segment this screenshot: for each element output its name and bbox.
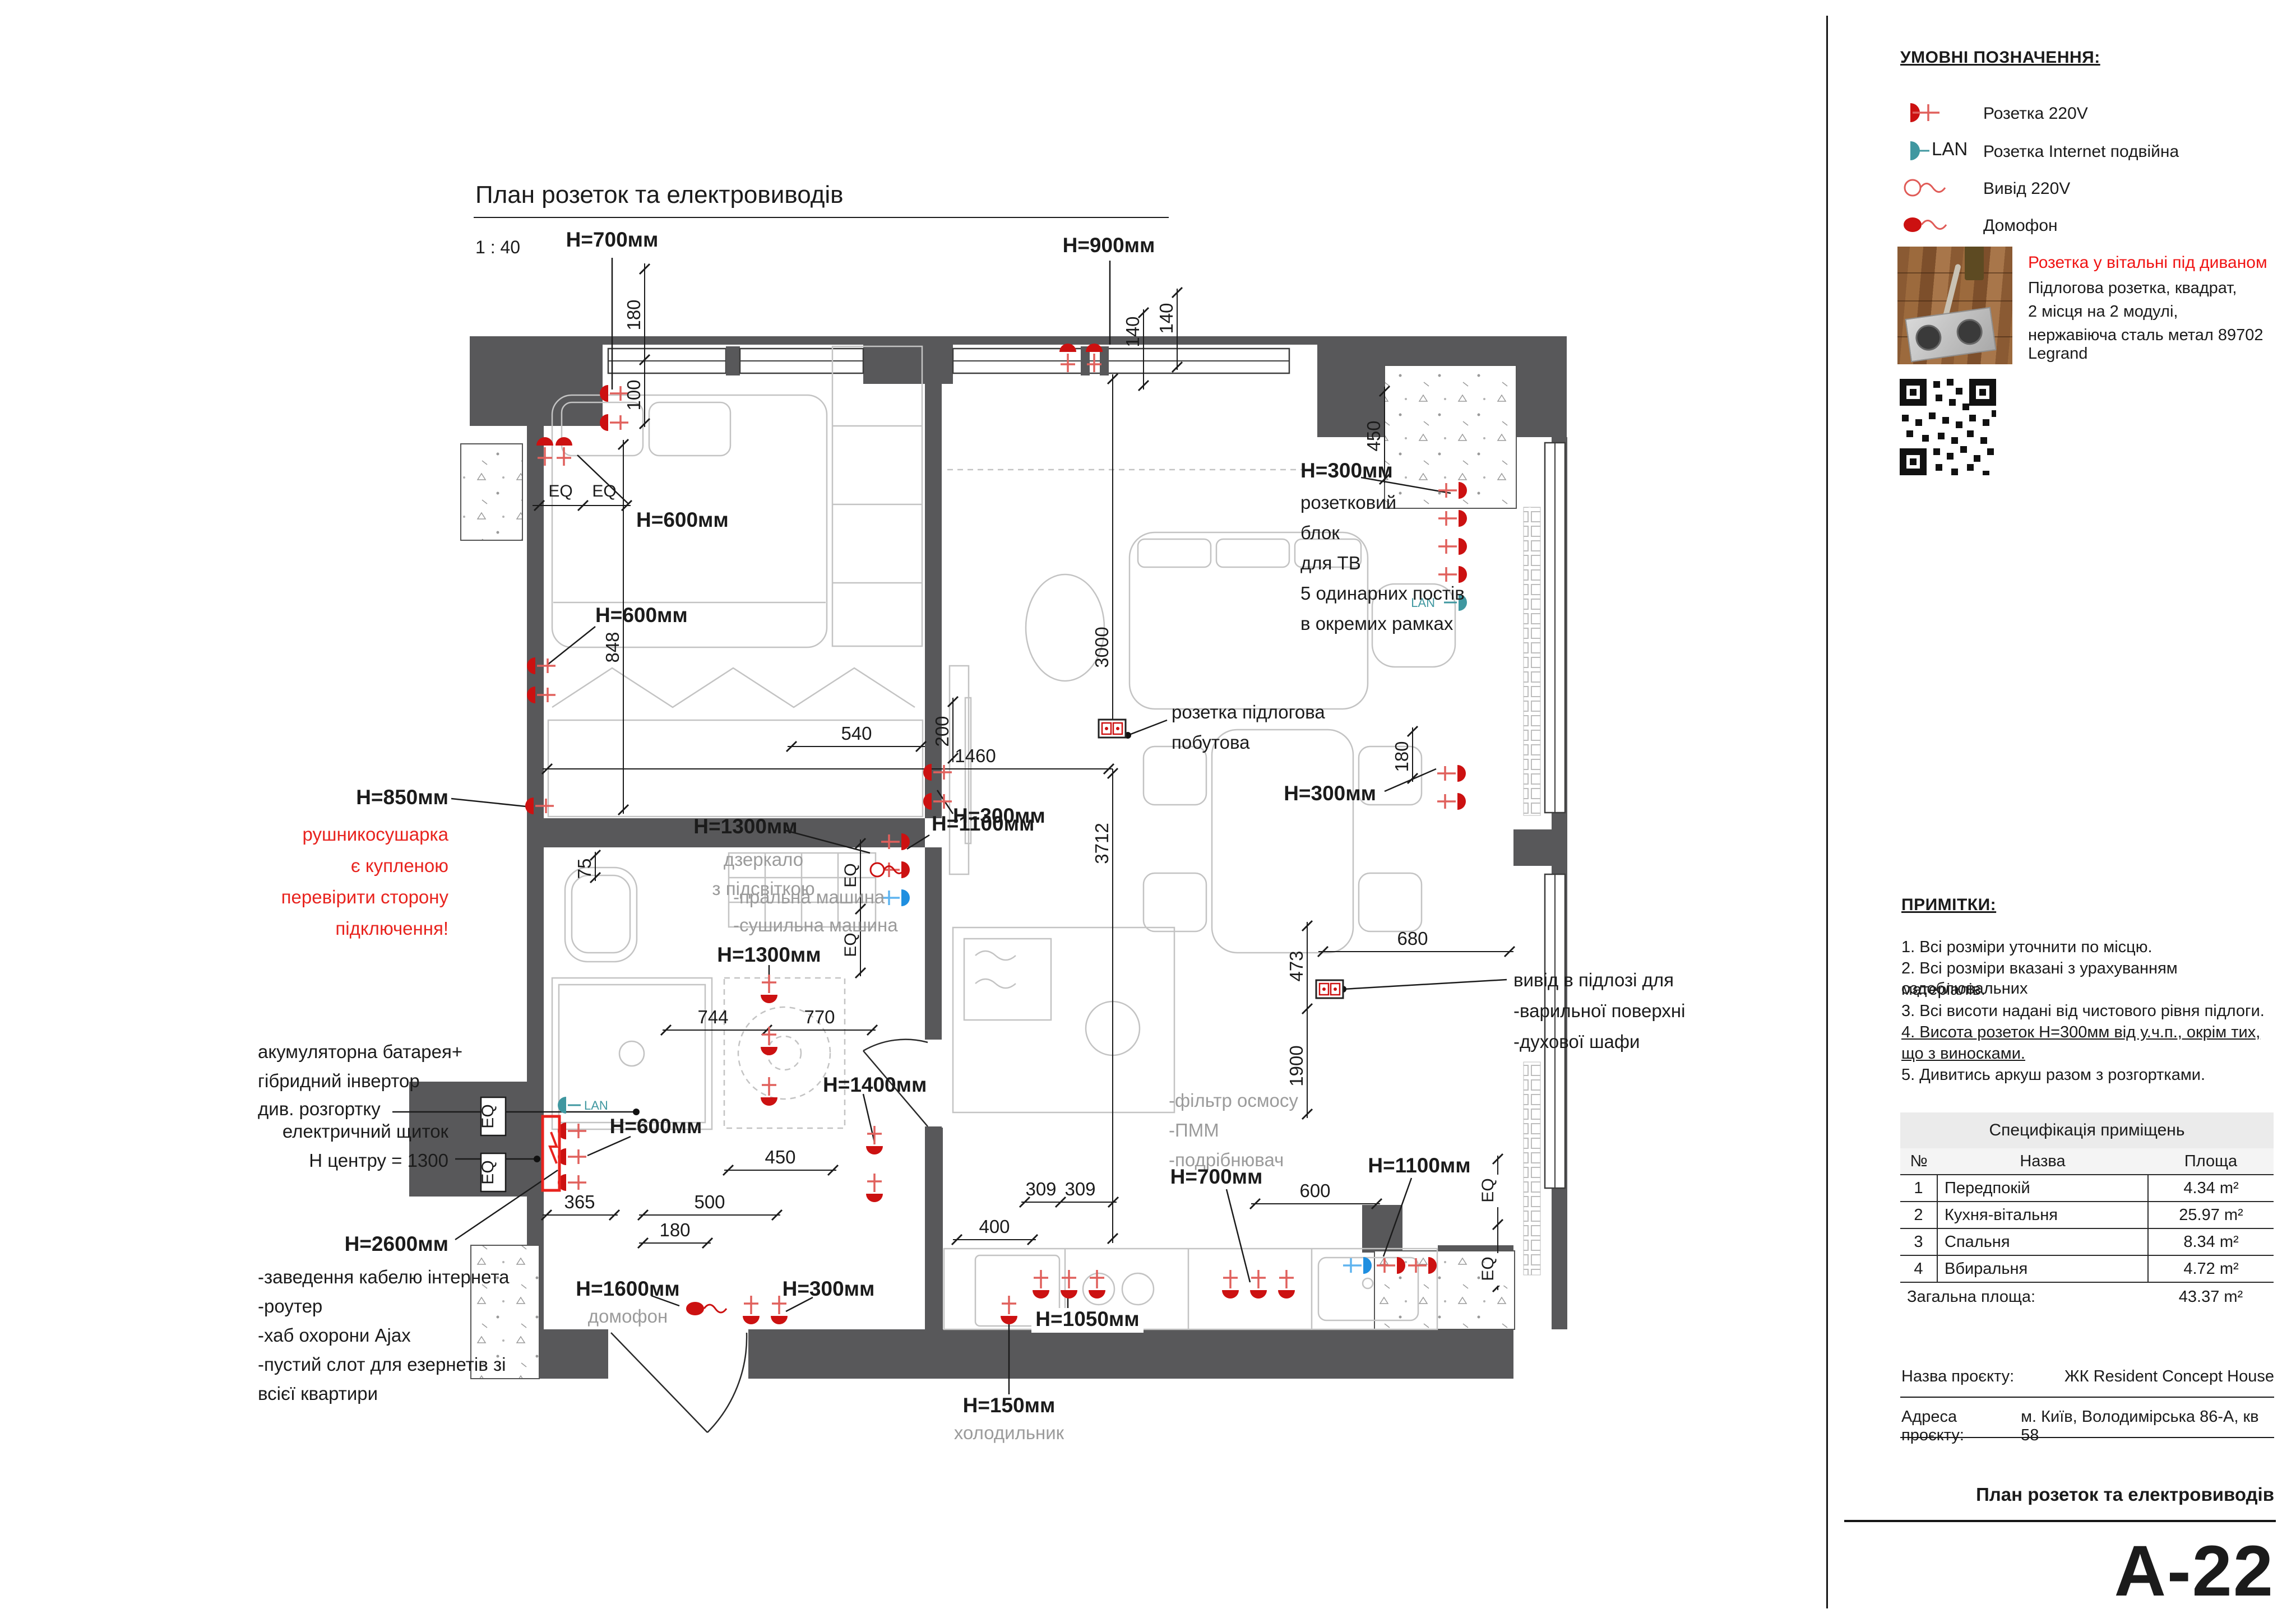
note-item: 4. Висота розеток Н=300мм від у.ч.п., ок… bbox=[1901, 1022, 2260, 1042]
svg-text:гібридний інвертор: гібридний інвертор bbox=[258, 1070, 420, 1091]
outlet-220v-icon bbox=[1033, 1270, 1049, 1299]
outlet-220v-icon bbox=[1437, 793, 1466, 810]
note-item: матеріалів. bbox=[1901, 980, 1985, 1000]
svg-text:EQ: EQ bbox=[479, 1104, 497, 1128]
outlet-220v-icon bbox=[1900, 100, 1968, 126]
svg-text:рушникосушарка: рушникосушарка bbox=[303, 824, 449, 845]
svg-text:140: 140 bbox=[1122, 316, 1143, 347]
title-block-panel: УМОВНІ ПОЗНАЧЕННЯ: Розетка 220V LAN Розе… bbox=[1827, 0, 2296, 1623]
svg-text:H=300мм: H=300мм bbox=[1284, 782, 1376, 805]
outlet-220v-icon bbox=[1222, 1270, 1239, 1299]
outlet-220v-icon bbox=[761, 1027, 777, 1055]
svg-text:400: 400 bbox=[979, 1216, 1010, 1237]
address-value: м. Київ, Володимірська 86-А, кв 58 bbox=[2021, 1408, 2274, 1445]
dining-table bbox=[1212, 730, 1353, 953]
outlet-220v-icon bbox=[1438, 538, 1467, 555]
svg-text:дзеркало: дзеркало bbox=[724, 849, 803, 870]
svg-text:3000: 3000 bbox=[1091, 627, 1112, 667]
svg-text:блок: блок bbox=[1300, 522, 1340, 543]
callout-title: Розетка у вітальні під диваном bbox=[2028, 253, 2267, 272]
svg-text:473: 473 bbox=[1286, 950, 1307, 981]
legend-item-output-220v bbox=[1900, 175, 1968, 203]
svg-text:200: 200 bbox=[932, 716, 952, 746]
chair bbox=[1359, 873, 1422, 931]
svg-text:EQ: EQ bbox=[479, 1160, 497, 1184]
svg-text:-хаб охорони Ajax: -хаб охорони Ajax bbox=[258, 1325, 411, 1346]
svg-text:EQ: EQ bbox=[841, 933, 860, 957]
svg-text:680: 680 bbox=[1397, 928, 1428, 949]
pillow bbox=[649, 402, 730, 456]
outlet-220v-icon bbox=[558, 1148, 586, 1165]
col-header-name: Назва bbox=[1937, 1148, 2148, 1175]
table-row: 2 Кухня-вітальня 25.97 m² bbox=[1900, 1202, 2274, 1228]
col-header-area: Площа bbox=[2148, 1148, 2274, 1175]
sheet-footer-title: План розеток та електровиводів bbox=[1901, 1484, 2274, 1505]
svg-text:всієї квартири: всієї квартири bbox=[258, 1383, 378, 1404]
plan-title: План розеток та електровиводів bbox=[475, 181, 844, 208]
microwave bbox=[964, 939, 1051, 1020]
svg-text:5 одинарних постів: 5 одинарних постів bbox=[1300, 583, 1465, 604]
floor-outlet-icon bbox=[1099, 720, 1126, 738]
bath-door-swing bbox=[863, 1040, 928, 1051]
total-value: 43.37 m² bbox=[2148, 1282, 2274, 1311]
svg-text:180: 180 bbox=[1391, 741, 1412, 772]
radiators bbox=[1524, 507, 1540, 1275]
svg-text:EQ: EQ bbox=[1479, 1178, 1497, 1202]
legend-item-label: Вивід 220V bbox=[1983, 179, 2070, 198]
svg-text:електричний щиток: електричний щиток bbox=[283, 1121, 449, 1142]
svg-text:H=700мм: H=700мм bbox=[566, 228, 659, 251]
svg-text:500: 500 bbox=[694, 1191, 725, 1212]
legend-item-outlet-220v bbox=[1900, 100, 1968, 128]
outlet-220v-icon bbox=[600, 414, 628, 431]
svg-text:домофон: домофон bbox=[588, 1306, 668, 1327]
callout-line: Підлогова розетка, квадрат, bbox=[2028, 279, 2237, 298]
note-item: 5. Дивитись аркуш разом з розгортками. bbox=[1901, 1065, 2205, 1085]
svg-text:-пральна машина: -пральна машина bbox=[733, 887, 885, 907]
svg-text:-сушильна машина: -сушильна машина bbox=[733, 915, 898, 935]
table-row: 3 Спальня 8.34 m² bbox=[1900, 1228, 2274, 1255]
chair bbox=[1144, 873, 1206, 931]
output-220v-icon bbox=[1900, 175, 1968, 201]
svg-text:H=1400мм: H=1400мм bbox=[823, 1073, 927, 1096]
table-row: 4 Вбиральня 4.72 m² bbox=[1900, 1255, 2274, 1282]
intercom-icon bbox=[1900, 212, 1968, 238]
svg-text:Н центру = 1300: Н центру = 1300 bbox=[309, 1150, 448, 1171]
svg-text:-фільтр осмосу: -фільтр осмосу bbox=[1169, 1090, 1298, 1111]
intercom-icon bbox=[686, 1302, 726, 1315]
svg-text:309: 309 bbox=[1064, 1179, 1095, 1199]
outlet-220v-icon bbox=[1250, 1270, 1267, 1299]
rule-thick bbox=[1844, 1520, 2276, 1522]
svg-text:H=700мм: H=700мм bbox=[1170, 1165, 1263, 1188]
svg-text:H=600мм: H=600мм bbox=[610, 1115, 702, 1138]
outlet-blue-icon bbox=[881, 889, 910, 906]
svg-text:EQ: EQ bbox=[548, 482, 572, 500]
svg-text:див. розгортку: див. розгортку bbox=[258, 1098, 381, 1119]
svg-text:H=300мм: H=300мм bbox=[783, 1277, 875, 1300]
table-row: 1 Передпокій 4.34 m² bbox=[1900, 1175, 2274, 1202]
rule bbox=[1900, 1437, 2274, 1438]
svg-text:770: 770 bbox=[804, 1007, 835, 1027]
legend-item-label: Домофон bbox=[1983, 216, 2058, 235]
svg-text:309: 309 bbox=[1025, 1179, 1056, 1199]
shower bbox=[552, 978, 712, 1129]
floor-outlet-photo bbox=[1897, 247, 2012, 364]
svg-text:450: 450 bbox=[765, 1147, 795, 1167]
svg-text:100: 100 bbox=[623, 379, 644, 410]
room-spec-table: Специфікація приміщень № Назва Площа 1 П… bbox=[1900, 1112, 2274, 1311]
legend-item-outlet-internet: LAN bbox=[1900, 138, 1984, 166]
total-label: Загальна площа: bbox=[1900, 1282, 2148, 1311]
svg-text:-пустий слот для езернетів зі: -пустий слот для езернетів зі bbox=[258, 1354, 506, 1375]
svg-text:підключення!: підключення! bbox=[335, 918, 448, 939]
svg-text:перевірити сторону: перевірити сторону bbox=[281, 887, 449, 907]
legend-item-label: Розетка 220V bbox=[1983, 104, 2088, 123]
svg-text:розетковий: розетковий bbox=[1300, 492, 1396, 513]
svg-text:LAN: LAN bbox=[1932, 138, 1968, 159]
callout-line: нержавіюча сталь метал 89702 Legrand bbox=[2028, 326, 2296, 363]
svg-text:-ПММ: -ПММ bbox=[1169, 1120, 1219, 1140]
outlet-220v-icon bbox=[1001, 1296, 1017, 1324]
svg-text:H=600мм: H=600мм bbox=[636, 508, 729, 531]
svg-text:в окремих рамках: в окремих рамках bbox=[1300, 613, 1453, 634]
svg-text:H=1300мм: H=1300мм bbox=[693, 815, 797, 838]
svg-text:H=1100мм: H=1100мм bbox=[1368, 1154, 1470, 1177]
svg-text:180: 180 bbox=[659, 1219, 690, 1240]
address-label: Адреса проєкту: bbox=[1901, 1408, 2021, 1445]
col-header-num: № bbox=[1900, 1148, 1937, 1175]
svg-text:1460: 1460 bbox=[955, 745, 996, 766]
lightning-icon bbox=[550, 1132, 557, 1163]
note-item: 1. Всі розміри уточнити по місцю. bbox=[1901, 937, 2152, 957]
outlet-220v-icon bbox=[881, 861, 910, 878]
svg-text:H=1300мм: H=1300мм bbox=[717, 943, 821, 966]
svg-text:H=150мм: H=150мм bbox=[963, 1394, 1056, 1417]
svg-text:180: 180 bbox=[623, 299, 644, 330]
svg-text:450: 450 bbox=[1363, 420, 1384, 451]
svg-text:365: 365 bbox=[564, 1191, 595, 1212]
notes-title: ПРИМІТКИ: bbox=[1901, 896, 1996, 915]
svg-text:140: 140 bbox=[1156, 303, 1177, 333]
outlet-220v-icon bbox=[1437, 765, 1466, 782]
svg-text:75: 75 bbox=[574, 859, 595, 879]
outlet-internet-icon bbox=[558, 1097, 581, 1114]
project-value: ЖК Resident Concept House bbox=[2064, 1367, 2274, 1386]
hanger-rail bbox=[552, 668, 915, 707]
svg-text:848: 848 bbox=[602, 632, 623, 662]
svg-text:H=2600мм: H=2600мм bbox=[345, 1232, 448, 1255]
outlet-220v-icon bbox=[558, 1123, 586, 1139]
svg-text:розетка підлогова: розетка підлогова bbox=[1172, 702, 1325, 722]
outlet-internet-icon: LAN bbox=[1900, 138, 1984, 164]
note-item: що з виносками. bbox=[1901, 1044, 2025, 1064]
outlet-220v-icon bbox=[761, 1077, 777, 1106]
callout-line: 2 місця на 2 модулі, bbox=[2028, 303, 2178, 321]
svg-text:744: 744 bbox=[697, 1007, 728, 1027]
svg-text:вивід в підлозі для: вивід в підлозі для bbox=[1513, 970, 1674, 990]
outlet-220v-icon bbox=[761, 975, 777, 1003]
note-item: 3. Всі висоти надані від чистового рівня… bbox=[1901, 1001, 2265, 1021]
svg-text:3712: 3712 bbox=[1091, 823, 1112, 864]
lan-label: LAN bbox=[584, 1098, 608, 1112]
svg-text:є купленою: є купленою bbox=[351, 855, 448, 876]
outlet-220v-icon bbox=[866, 1126, 883, 1154]
svg-text:-роутер: -роутер bbox=[258, 1296, 322, 1316]
svg-text:EQ: EQ bbox=[592, 482, 616, 500]
svg-text:540: 540 bbox=[841, 723, 872, 744]
svg-text:H=1050мм: H=1050мм bbox=[1035, 1307, 1139, 1330]
svg-text:H=900мм: H=900мм bbox=[1063, 234, 1155, 257]
svg-text:H=1100мм: H=1100мм bbox=[932, 812, 1034, 835]
svg-text:-духової шафи: -духової шафи bbox=[1513, 1031, 1640, 1052]
floor-plan: LAN LAN bbox=[0, 0, 1827, 1623]
svg-text:H=300мм: H=300мм bbox=[1300, 459, 1393, 482]
outlet-220v-icon bbox=[743, 1296, 760, 1324]
svg-text:H=850мм: H=850мм bbox=[356, 786, 448, 809]
floor-outlet-icon bbox=[1316, 980, 1343, 998]
legend-item-intercom bbox=[1900, 212, 1968, 240]
spec-table-title: Специфікація приміщень bbox=[1900, 1112, 2274, 1148]
sheet-code: A-22 bbox=[1901, 1530, 2274, 1612]
legend-title: УМОВНІ ПОЗНАЧЕННЯ: bbox=[1900, 48, 2100, 67]
svg-text:1900: 1900 bbox=[1286, 1045, 1307, 1086]
outlet-220v-icon bbox=[1438, 566, 1467, 583]
svg-text:EQ: EQ bbox=[1479, 1256, 1497, 1281]
outlet-220v-icon bbox=[1278, 1270, 1295, 1299]
legend-item-label: Розетка Internet подвійна bbox=[1983, 142, 2179, 161]
outlet-blue-icon bbox=[1343, 1257, 1372, 1274]
chair bbox=[1144, 746, 1206, 805]
outlet-220v-icon bbox=[1438, 510, 1467, 527]
plan-scale: 1 : 40 bbox=[475, 237, 520, 257]
outlet-220v-icon bbox=[866, 1174, 883, 1202]
svg-text:-заведення кабелю інтернета: -заведення кабелю інтернета bbox=[258, 1267, 510, 1287]
washing-machine bbox=[724, 978, 845, 1128]
drawing-sheet: LAN LAN bbox=[0, 0, 2296, 1623]
svg-text:600: 600 bbox=[1299, 1180, 1330, 1201]
table-total-row: Загальна площа: 43.37 m² bbox=[1900, 1282, 2274, 1311]
svg-text:побутова: побутова bbox=[1172, 732, 1250, 753]
svg-text:EQ: EQ bbox=[841, 863, 860, 887]
outlet-220v-icon bbox=[558, 1174, 586, 1191]
outlet-220v-icon bbox=[1061, 1270, 1077, 1299]
svg-text:акумуляторна батарея+: акумуляторна батарея+ bbox=[258, 1041, 462, 1062]
svg-text:H=1600мм: H=1600мм bbox=[576, 1277, 679, 1300]
rule bbox=[1900, 1397, 2274, 1398]
project-label: Назва проєкту: bbox=[1901, 1367, 2014, 1386]
svg-text:H=600мм: H=600мм bbox=[595, 604, 688, 627]
closet bbox=[832, 346, 922, 646]
outlet-220v-icon bbox=[556, 437, 572, 466]
svg-text:холодильник: холодильник bbox=[954, 1422, 1064, 1443]
svg-text:для ТВ: для ТВ bbox=[1300, 553, 1361, 573]
qr-code bbox=[1897, 377, 1998, 480]
svg-text:-варильної поверхні: -варильної поверхні bbox=[1513, 1000, 1685, 1021]
